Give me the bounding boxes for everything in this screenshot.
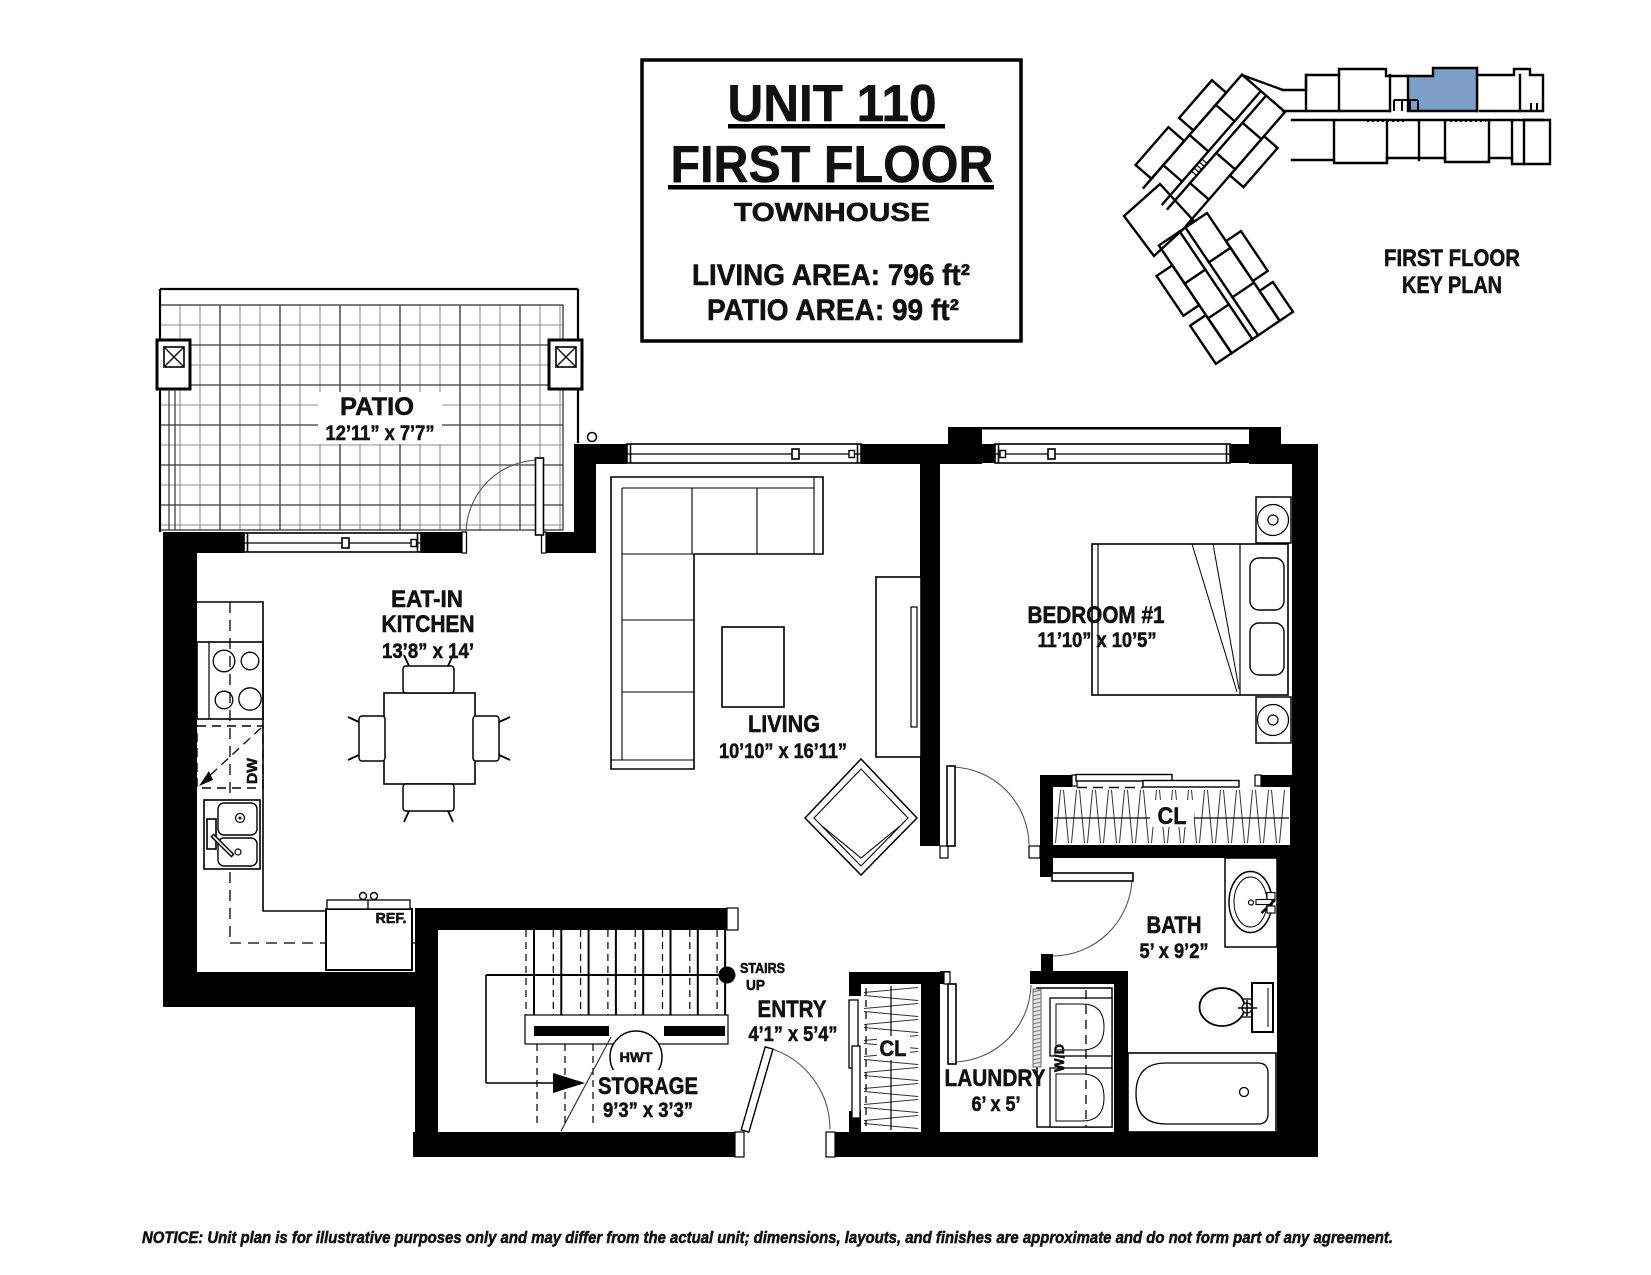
svg-text:13’8” x 14’: 13’8” x 14’ <box>382 640 474 663</box>
svg-text:ENTRY: ENTRY <box>758 996 827 1023</box>
svg-text:DW: DW <box>244 757 261 784</box>
svg-text:9’3” x 3’3”: 9’3” x 3’3” <box>603 1099 693 1122</box>
svg-text:11’10” x 10’5”: 11’10” x 10’5” <box>1038 629 1157 652</box>
svg-text:EAT-IN: EAT-IN <box>391 586 463 613</box>
svg-text:STORAGE: STORAGE <box>598 1073 698 1100</box>
svg-text:W/D: W/D <box>1052 1044 1067 1072</box>
svg-text:STAIRS: STAIRS <box>740 961 785 977</box>
svg-text:LAUNDRY: LAUNDRY <box>945 1065 1046 1092</box>
svg-text:10’10” x 16’11”: 10’10” x 16’11” <box>719 740 847 763</box>
svg-text:FIRST FLOOR: FIRST FLOOR <box>1384 245 1520 272</box>
svg-text:CL: CL <box>880 1036 907 1061</box>
svg-text:CL: CL <box>1158 803 1187 830</box>
svg-text:KEY PLAN: KEY PLAN <box>1402 272 1502 299</box>
svg-text:LIVING: LIVING <box>748 711 820 738</box>
svg-text:UP: UP <box>746 978 765 994</box>
svg-text:LIVING AREA: 796 ft²: LIVING AREA: 796 ft² <box>692 259 970 292</box>
svg-text:NOTICE: Unit plan is for illus: NOTICE: Unit plan is for illustrative pu… <box>142 1229 1393 1247</box>
svg-text:PATIO AREA: 99 ft²: PATIO AREA: 99 ft² <box>707 294 959 327</box>
svg-text:PATIO: PATIO <box>340 393 414 421</box>
svg-text:BATH: BATH <box>1147 912 1202 939</box>
svg-text:KITCHEN: KITCHEN <box>382 611 475 638</box>
svg-text:REF.: REF. <box>376 911 407 927</box>
svg-text:TOWNHOUSE: TOWNHOUSE <box>734 197 930 227</box>
svg-text:BEDROOM #1: BEDROOM #1 <box>1028 602 1165 629</box>
svg-text:12’11” x 7’7”: 12’11” x 7’7” <box>326 422 435 445</box>
svg-text:4’1” x 5’4”: 4’1” x 5’4” <box>749 1023 838 1046</box>
svg-text:6’ x 5’: 6’ x 5’ <box>972 1093 1021 1116</box>
svg-text:HWT: HWT <box>620 1049 653 1065</box>
svg-text:5’ x 9’2”: 5’ x 9’2” <box>1140 940 1209 963</box>
